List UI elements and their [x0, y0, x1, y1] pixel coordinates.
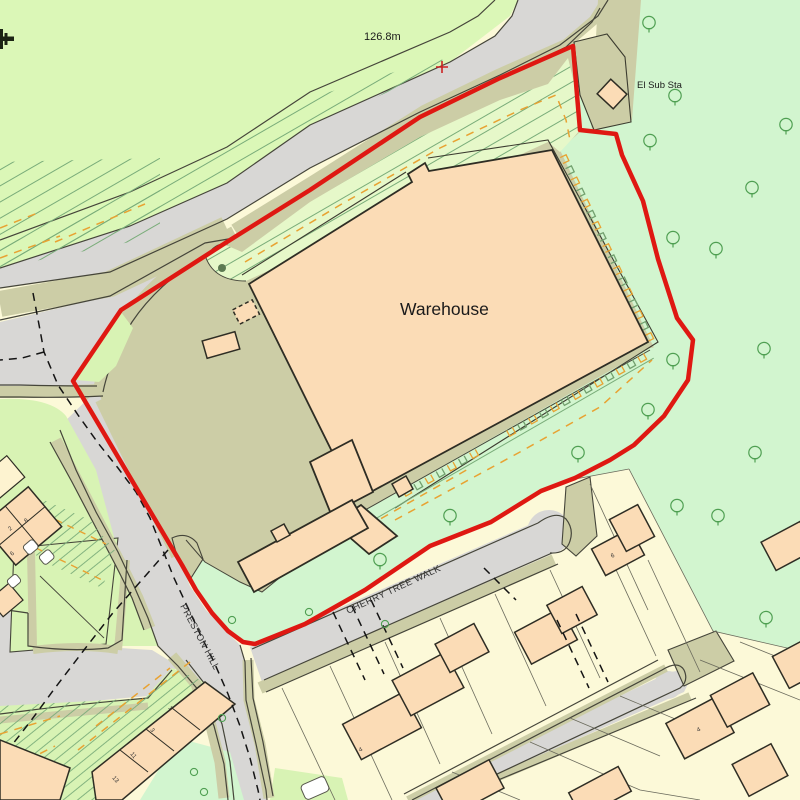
svg-text:126.8m: 126.8m — [364, 31, 401, 43]
svg-text:Warehouse: Warehouse — [400, 299, 489, 319]
svg-text:El Sub Sta: El Sub Sta — [637, 80, 683, 91]
